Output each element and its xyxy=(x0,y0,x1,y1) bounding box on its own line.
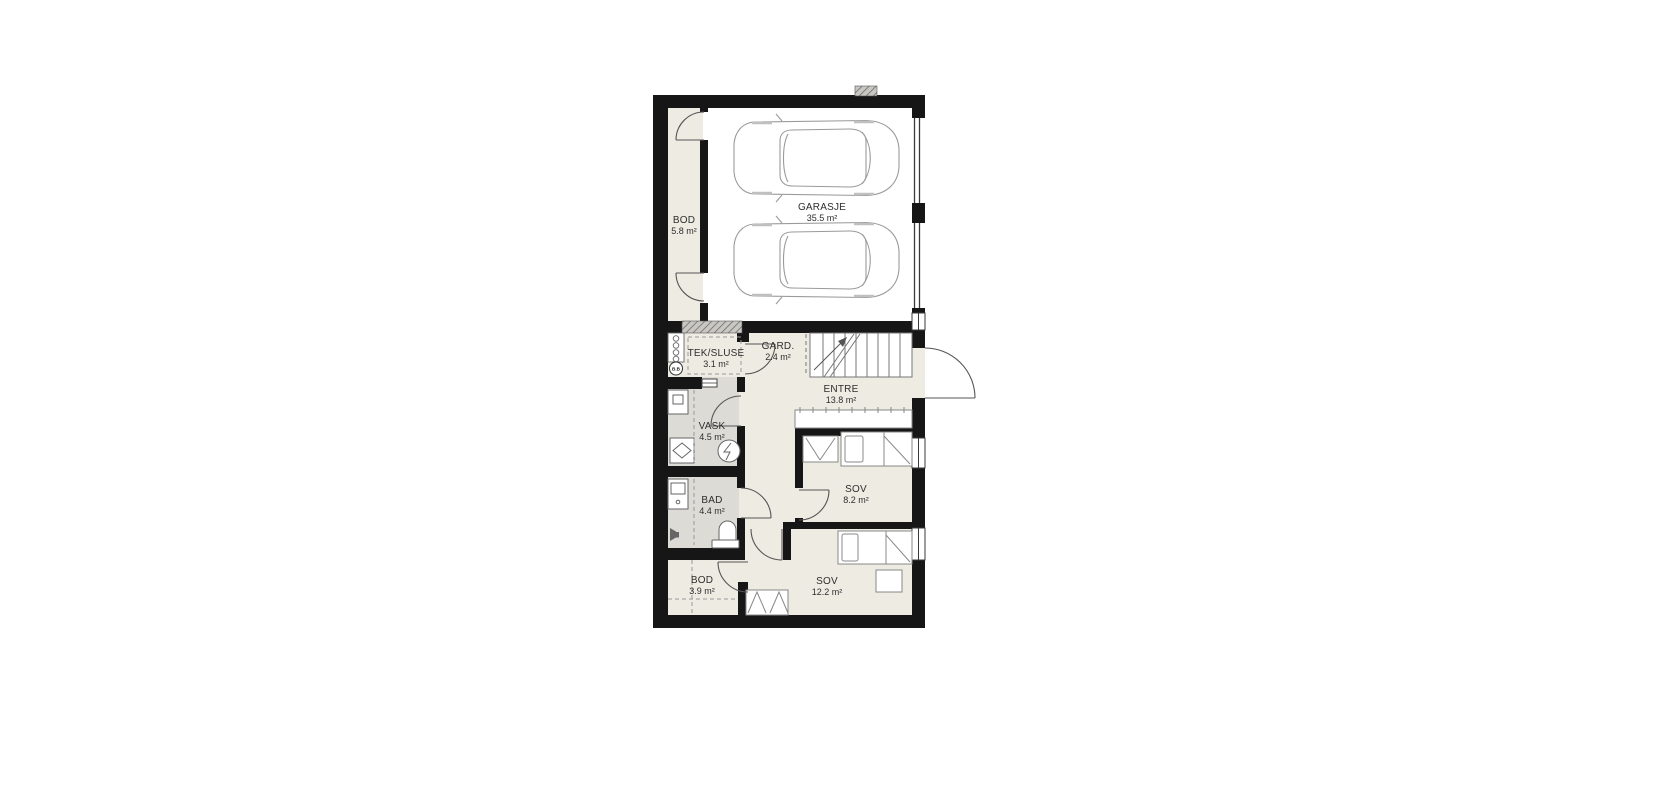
water-heater xyxy=(718,440,740,462)
svg-text:12.2 m²: 12.2 m² xyxy=(812,587,843,597)
car-1 xyxy=(734,114,899,202)
svg-text:8.2 m²: 8.2 m² xyxy=(843,495,869,505)
svg-text:2.4 m²: 2.4 m² xyxy=(765,352,791,362)
washing-machine xyxy=(668,390,688,414)
entry-door xyxy=(925,348,975,398)
svg-text:ENTRE: ENTRE xyxy=(824,384,859,395)
label-sov2: SOV 12.2 m² xyxy=(812,576,843,597)
floorplan-canvas: B.B xyxy=(0,0,1670,800)
svg-text:GARASJE: GARASJE xyxy=(798,202,846,213)
label-vask: VASK 4.5 m² xyxy=(699,421,726,442)
label-entre: ENTRE 13.8 m² xyxy=(824,384,859,405)
bb-marker: B.B xyxy=(670,362,683,375)
sov2-wardrobe xyxy=(746,590,788,615)
entre-window xyxy=(912,313,925,330)
svg-text:13.8 m²: 13.8 m² xyxy=(826,395,857,405)
svg-text:SOV: SOV xyxy=(816,576,838,587)
tech-shaft xyxy=(668,333,684,362)
sov2-window xyxy=(912,528,925,560)
vanity-sink xyxy=(668,479,688,509)
svg-text:BAD: BAD xyxy=(701,495,722,506)
svg-text:VASK: VASK xyxy=(699,421,726,432)
label-gard: GARD. 2.4 m² xyxy=(762,341,795,362)
sov1-closet xyxy=(803,436,838,462)
floor-drain-unit xyxy=(670,438,694,463)
svg-text:3.9 m²: 3.9 m² xyxy=(689,586,715,596)
svg-text:SOV: SOV xyxy=(845,484,867,495)
sov2-bed xyxy=(838,531,912,564)
car-2 xyxy=(734,216,899,304)
entre-wardrobe xyxy=(795,407,912,428)
label-bad: BAD 4.4 m² xyxy=(699,495,725,516)
sov2-nightstand xyxy=(876,570,902,592)
svg-text:35.5 m²: 35.5 m² xyxy=(807,213,838,223)
svg-text:BOD: BOD xyxy=(673,215,695,226)
sov1-bed xyxy=(841,432,912,466)
svg-text:3.1 m²: 3.1 m² xyxy=(703,359,729,369)
label-sov1: SOV 8.2 m² xyxy=(843,484,869,505)
svg-text:TEK/SLUSE: TEK/SLUSE xyxy=(688,348,745,359)
label-bod-garage: BOD 5.8 m² xyxy=(671,215,697,236)
label-bod2: BOD 3.9 m² xyxy=(689,575,715,596)
svg-text:4.4 m²: 4.4 m² xyxy=(699,506,725,516)
tek-sliding-door xyxy=(702,379,717,387)
sov1-window xyxy=(912,438,925,468)
svg-text:4.5 m²: 4.5 m² xyxy=(699,432,725,442)
stairs-floor xyxy=(810,333,912,377)
bb-marker-label: B.B xyxy=(672,367,681,372)
svg-text:GARD.: GARD. xyxy=(762,341,795,352)
svg-text:BOD: BOD xyxy=(691,575,713,586)
svg-text:5.8 m²: 5.8 m² xyxy=(671,226,697,236)
